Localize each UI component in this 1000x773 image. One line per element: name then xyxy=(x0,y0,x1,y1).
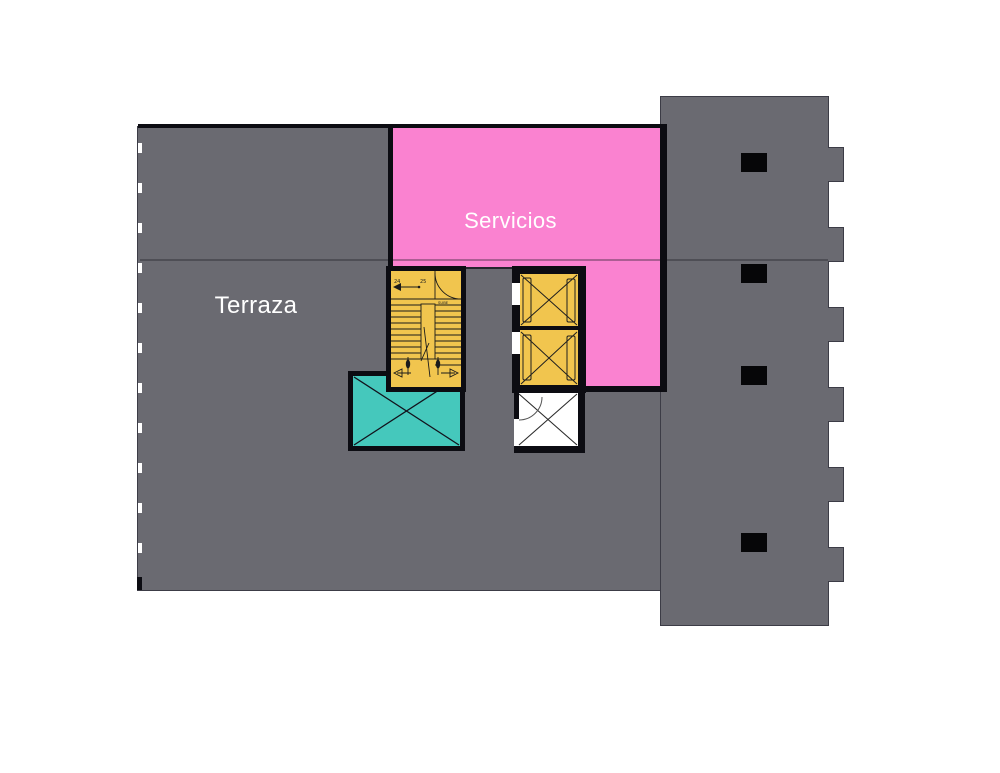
stairwell-fill: 24 25 SUBE xyxy=(391,271,461,387)
wall-left-of-servicios xyxy=(388,124,393,271)
facade-tooth xyxy=(828,387,844,422)
shaft-x-cross xyxy=(519,394,577,445)
core-corridor xyxy=(463,267,518,394)
facade-notch-edge-left xyxy=(138,143,142,583)
elevator-cars-drawing xyxy=(520,274,578,385)
open-shaft-drawing xyxy=(514,393,585,453)
door-swing-arc xyxy=(519,397,542,420)
wall-right-of-servicios xyxy=(660,124,667,392)
facade-tooth xyxy=(828,147,844,182)
facade-tooth xyxy=(828,547,844,582)
terraza-room-label: Terraza xyxy=(195,294,317,318)
elevator-divider-wall xyxy=(520,326,578,330)
elevator-door-opening xyxy=(512,332,520,354)
section-divider-line xyxy=(140,259,828,261)
stair-direction-text: SUBE xyxy=(438,300,449,305)
stair-treads xyxy=(391,271,461,365)
facade-tooth xyxy=(828,307,844,342)
shaft-wall-left-stub xyxy=(514,393,519,419)
elevator-car-top xyxy=(521,275,577,325)
facade-tooth xyxy=(828,467,844,502)
shaft-wall-right xyxy=(578,393,585,453)
elevator-shaft-fill xyxy=(520,274,578,385)
stair-direction-arrows xyxy=(393,283,458,377)
wall-below-servicios xyxy=(583,386,667,392)
structural-column xyxy=(741,366,767,385)
open-shaft-room xyxy=(514,393,585,453)
elevator-shaft xyxy=(512,266,586,393)
stairwell: 24 25 SUBE xyxy=(386,266,466,392)
north-perimeter-wall xyxy=(138,124,667,128)
stair-drawing: 24 25 SUBE xyxy=(391,271,461,387)
elevator-car-bottom xyxy=(521,332,577,384)
structural-column xyxy=(741,533,767,552)
elevator-door-opening xyxy=(512,283,520,305)
wall-end-marker xyxy=(137,577,142,590)
structural-column xyxy=(741,153,767,172)
stair-step-number: 24 xyxy=(394,279,400,285)
structural-column xyxy=(741,264,767,283)
shaft-wall-bottom xyxy=(514,446,585,453)
floor-plan-canvas: 24 25 SUBE xyxy=(0,0,1000,773)
facade-tooth xyxy=(828,227,844,262)
door-swing-arc xyxy=(435,273,461,299)
stair-step-number: 25 xyxy=(420,279,426,285)
servicios-room-label: Servicios xyxy=(448,210,573,232)
